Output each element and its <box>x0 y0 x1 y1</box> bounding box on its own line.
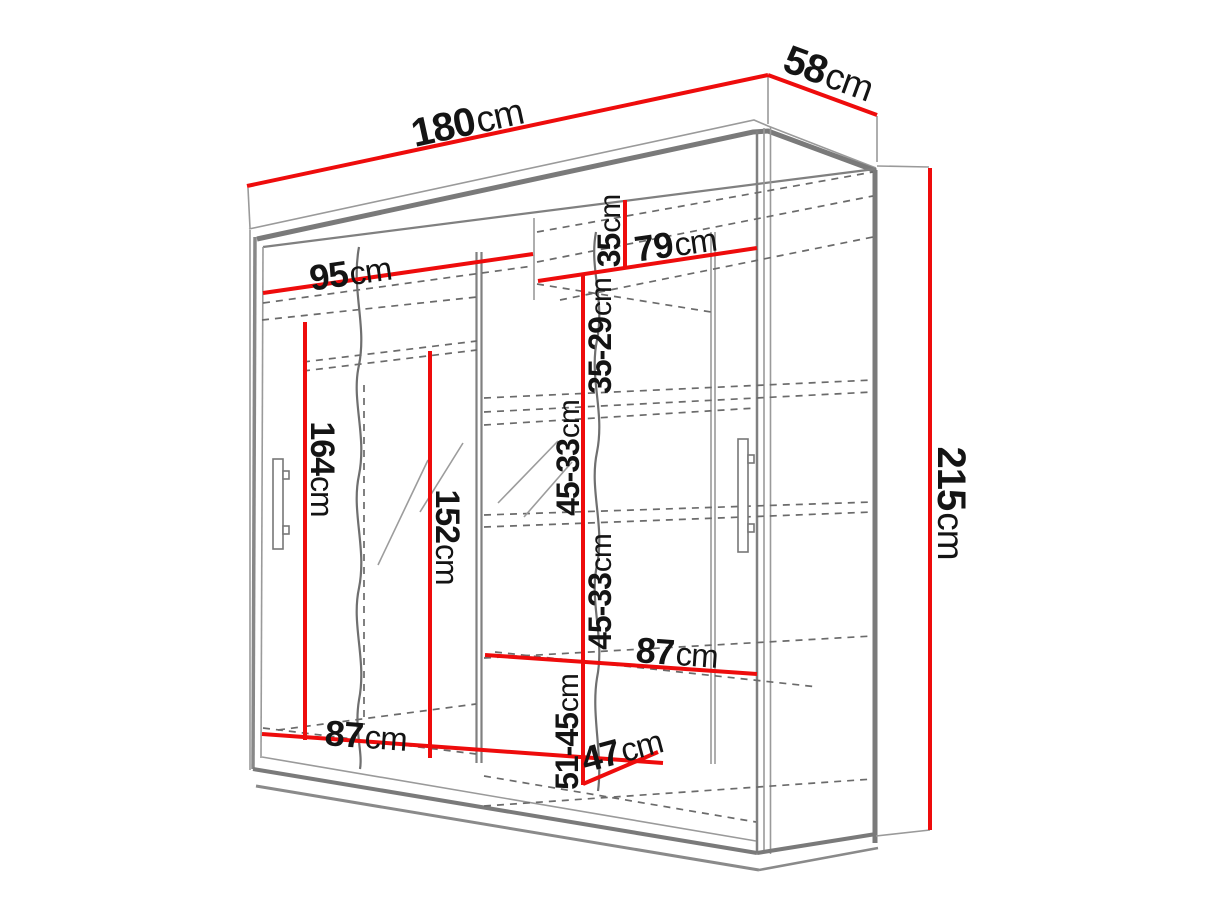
left-front-edge <box>253 237 255 769</box>
dim-left-bottom-width-label: 87cm <box>324 712 409 759</box>
diagram-canvas: 180cm 58cm 215cm 95cm 79cm 35cm 35-29cm … <box>0 0 1216 912</box>
dim-middle-shelf-gap-upper-label: 45-33cm <box>550 400 586 516</box>
dim-middle-shelf-gap-lower-label: 45-33cm <box>582 534 618 650</box>
right-handle-screw-bottom <box>748 524 754 532</box>
dim-left-height-label: 164cm <box>303 421 341 516</box>
dim-top-shelf-gap-label: 35cm <box>591 195 627 268</box>
right-handle-screw-top <box>748 455 754 463</box>
left-handle-screw-bottom <box>283 526 289 534</box>
dim-right-shelf-width-label: 87cm <box>635 629 720 676</box>
witness-tick-height-top <box>877 166 929 167</box>
left-handle-screw-top <box>283 471 289 479</box>
right-door-handle <box>738 439 748 552</box>
dim-mirror-height-label: 152cm <box>428 489 466 584</box>
wardrobe-dimension-diagram: 180cm 58cm 215cm 95cm 79cm 35cm 35-29cm … <box>0 0 1216 912</box>
dim-total-height-label: 215cm <box>929 446 973 559</box>
dim-upper-shelf-gap-label: 35-29cm <box>582 278 618 394</box>
dim-bottom-shelf-gap-label: 51-45cm <box>549 674 585 790</box>
left-door-handle <box>273 459 283 549</box>
